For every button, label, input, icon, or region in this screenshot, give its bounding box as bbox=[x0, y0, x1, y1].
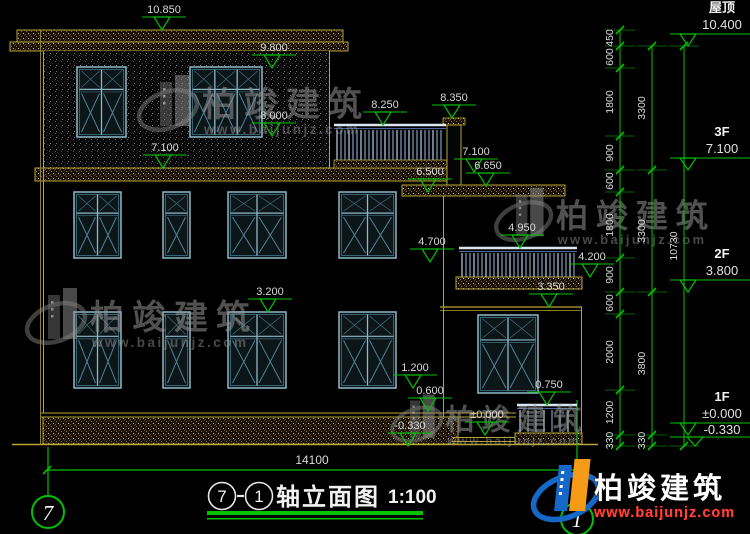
elevation-value: 0.750 bbox=[535, 379, 563, 391]
watermark-building-icon bbox=[160, 82, 172, 126]
elevation-marker-triangle bbox=[260, 299, 276, 312]
watermark-url: www.baijunjz.com bbox=[203, 122, 361, 137]
dim-value: 10730 bbox=[668, 231, 680, 260]
watermark-window-dot bbox=[519, 214, 521, 216]
dim-value: 3300 bbox=[636, 96, 648, 120]
brand-building-icon bbox=[554, 459, 590, 511]
elevation-value: 10.850 bbox=[147, 4, 181, 16]
elevation-value: 3.350 bbox=[537, 281, 565, 293]
elevation-value: -0.330 bbox=[394, 420, 425, 432]
floor-marker-triangle bbox=[680, 34, 696, 46]
elevation-value: 9.800 bbox=[260, 42, 288, 54]
floor-marker: 3F7.100 bbox=[670, 124, 750, 170]
floor-elevation: 10.400 bbox=[702, 17, 742, 32]
window-frame bbox=[163, 192, 190, 258]
brand-window-dot bbox=[561, 471, 564, 474]
window bbox=[339, 312, 396, 388]
watermark-window-dot bbox=[51, 308, 54, 311]
dim-value: 330 bbox=[604, 432, 616, 450]
roof-slab-lower bbox=[10, 42, 348, 51]
dim-value: 330 bbox=[636, 432, 648, 450]
window bbox=[228, 192, 286, 258]
elevation-value: 6.500 bbox=[416, 166, 444, 178]
elevation-marker-triangle bbox=[478, 173, 494, 186]
elevation-marker-triangle bbox=[541, 294, 557, 307]
watermark-window-dot bbox=[413, 412, 415, 414]
cad-elevation-canvas: 柏竣建筑www.baijunjz.com柏竣建筑www.baijunjz.com… bbox=[0, 0, 750, 534]
floor-elevation-2: -0.330 bbox=[704, 422, 741, 437]
brand-window-dot bbox=[560, 485, 563, 488]
dim-value: 1200 bbox=[604, 401, 616, 425]
watermark-window-dot bbox=[163, 102, 166, 105]
elevation-value: 8.000 bbox=[260, 110, 288, 122]
floor-marker-triangle bbox=[680, 158, 696, 170]
watermark-window-dot bbox=[51, 301, 54, 304]
title-circle-1-label: 1 bbox=[254, 487, 263, 506]
elevation-value: 4.950 bbox=[508, 222, 536, 234]
elevation-value: 7.100 bbox=[151, 142, 179, 154]
elevation-marker-triangle bbox=[539, 392, 555, 405]
elevation-value: 8.250 bbox=[371, 99, 399, 111]
roof-slab-upper bbox=[17, 30, 343, 42]
watermark-window-dot bbox=[413, 406, 415, 408]
window bbox=[339, 192, 396, 258]
watermark-text: 柏竣建筑 bbox=[90, 298, 258, 337]
overall-dim-text: 14100 bbox=[295, 453, 329, 467]
axis-bubble-7: 7 bbox=[32, 496, 64, 528]
dim-value: 900 bbox=[604, 144, 616, 162]
floor-slab-3f bbox=[35, 168, 460, 181]
elevation-marker: 8.350 bbox=[432, 92, 476, 118]
elevation-drawing: 柏竣建筑www.baijunjz.com柏竣建筑www.baijunjz.com… bbox=[0, 0, 750, 534]
elevation-marker-triangle bbox=[422, 249, 438, 262]
elevation-value: 3.200 bbox=[256, 286, 284, 298]
floor-name: 2F bbox=[714, 246, 729, 261]
floor-marker: 1F±0.000-0.330 bbox=[670, 389, 750, 446]
dim-value: 600 bbox=[604, 294, 616, 312]
floor-marker-triangle bbox=[680, 280, 696, 292]
watermark-url: www.baijunjz.com bbox=[446, 436, 580, 448]
watermark-window-dot bbox=[51, 315, 54, 318]
elevation-marker-triangle bbox=[582, 264, 598, 277]
title-underline-thin bbox=[207, 518, 423, 520]
elevation-value: 6.650 bbox=[474, 160, 502, 172]
elevation-marker-triangle bbox=[154, 17, 170, 30]
brand-name: 柏竣建筑 bbox=[594, 471, 726, 505]
floor-name: 1F bbox=[714, 389, 729, 404]
brand-window-dot bbox=[559, 492, 562, 495]
elevation-marker-triangle bbox=[375, 112, 391, 125]
floor-marker: 屋顶10.400 bbox=[670, 0, 750, 46]
dim-value: 600 bbox=[604, 48, 616, 66]
watermark-text: 柏竣建筑 bbox=[446, 403, 589, 436]
title-circle-7-label: 7 bbox=[217, 487, 226, 506]
watermark-url: www.baijunjz.com bbox=[91, 335, 249, 350]
brand-window-dot bbox=[560, 478, 563, 481]
title-text: 轴立面图 bbox=[276, 483, 380, 511]
dim-value: 450 bbox=[604, 29, 616, 47]
floor-elevation: 3.800 bbox=[706, 263, 739, 278]
watermark-window-dot bbox=[163, 88, 166, 91]
elevation-marker: 4.700 bbox=[410, 236, 454, 262]
floor-name: 3F bbox=[714, 124, 729, 139]
brand-url: www.baijunjz.com bbox=[593, 505, 735, 521]
floor-elevation: ±0.000 bbox=[702, 406, 742, 421]
watermark-building-icon bbox=[175, 75, 189, 126]
floor-marker-triangle bbox=[680, 423, 696, 435]
drawing-title: 7 1 轴立面图 1:100 bbox=[207, 483, 437, 520]
floor-elevation: 7.100 bbox=[706, 141, 739, 156]
pillar bbox=[447, 125, 461, 185]
elevation-marker: 10.850 bbox=[142, 4, 186, 30]
elevation-value: 8.350 bbox=[440, 92, 468, 104]
dim-value: 2000 bbox=[604, 340, 616, 364]
dim-value: 1800 bbox=[604, 90, 616, 114]
watermark: 柏竣建筑www.baijunjz.com bbox=[22, 288, 258, 350]
watermark-window-dot bbox=[519, 200, 521, 202]
brand-building-right bbox=[569, 459, 590, 511]
elevation-marker: 6.650 bbox=[466, 160, 510, 186]
window bbox=[478, 315, 538, 393]
floor-marker: 2F3.800 bbox=[670, 246, 750, 292]
elevation-marker-triangle bbox=[444, 105, 460, 118]
window bbox=[74, 192, 121, 258]
watermark-window-dot bbox=[163, 95, 166, 98]
railing bbox=[459, 248, 577, 277]
dim-value: 1800 bbox=[604, 213, 616, 237]
elevation-value: ±0.000 bbox=[470, 409, 504, 421]
elevation-value: 4.200 bbox=[578, 251, 606, 263]
dim-value: 900 bbox=[604, 266, 616, 284]
watermark-building-icon bbox=[48, 295, 60, 339]
elevation-value: 7.100 bbox=[462, 146, 490, 158]
dim-value: 3300 bbox=[636, 219, 648, 243]
elevation-value: 1.200 bbox=[401, 362, 429, 374]
elevation-value: 0.600 bbox=[416, 385, 444, 397]
title-scale: 1:100 bbox=[388, 487, 437, 508]
pillar-cap bbox=[443, 118, 465, 125]
overall-dimension: 14100 bbox=[43, 453, 581, 474]
elevation-value: 4.700 bbox=[418, 236, 446, 248]
window bbox=[77, 67, 126, 137]
watermark-window-dot bbox=[519, 207, 521, 209]
floor-marker-triangle bbox=[687, 437, 703, 446]
window bbox=[163, 192, 190, 258]
axis-bubble-label: 7 bbox=[43, 501, 55, 525]
watermark-building-icon bbox=[63, 288, 77, 339]
dim-value: 600 bbox=[604, 172, 616, 190]
brand-logo: 柏竣建筑 www.baijunjz.com bbox=[527, 459, 735, 528]
floor-name: 屋顶 bbox=[709, 0, 735, 15]
title-underline-thick bbox=[207, 511, 423, 515]
dim-value: 3800 bbox=[636, 352, 648, 376]
